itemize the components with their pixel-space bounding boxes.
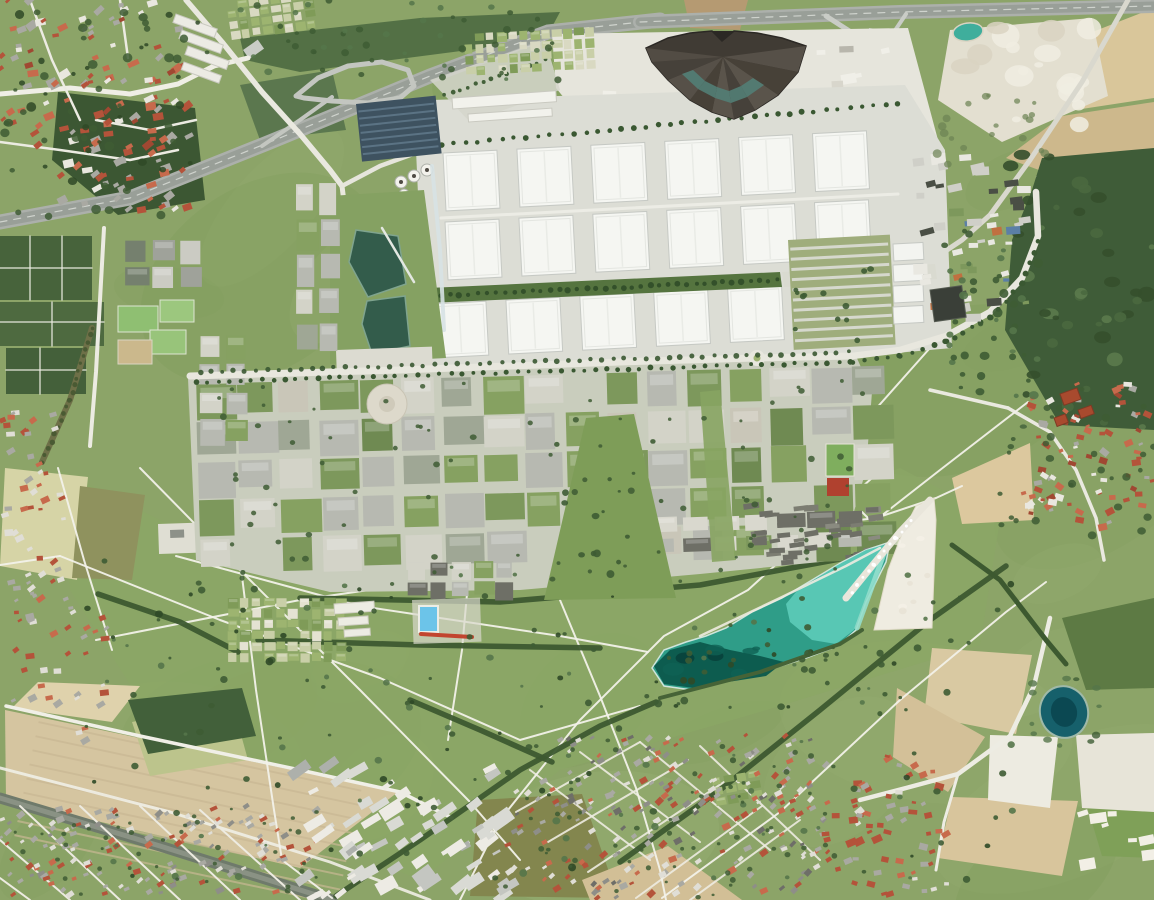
central-plaza-core xyxy=(379,396,395,412)
gravel-se-2 xyxy=(1076,733,1154,812)
aerial-scene xyxy=(0,0,1154,900)
solar-roof-building xyxy=(930,286,966,322)
sports-pitch-3 xyxy=(150,330,186,354)
park-west-building xyxy=(170,530,184,538)
school-building-red xyxy=(827,478,849,496)
parking-east xyxy=(788,235,896,350)
swimming-pool xyxy=(419,606,438,632)
sports-pitch-bare xyxy=(118,340,152,364)
sports-pitch-2 xyxy=(160,300,194,322)
aerial-photograph xyxy=(0,0,1154,900)
messe-pond-south xyxy=(362,296,410,354)
sports-pitch-1 xyxy=(118,306,158,332)
